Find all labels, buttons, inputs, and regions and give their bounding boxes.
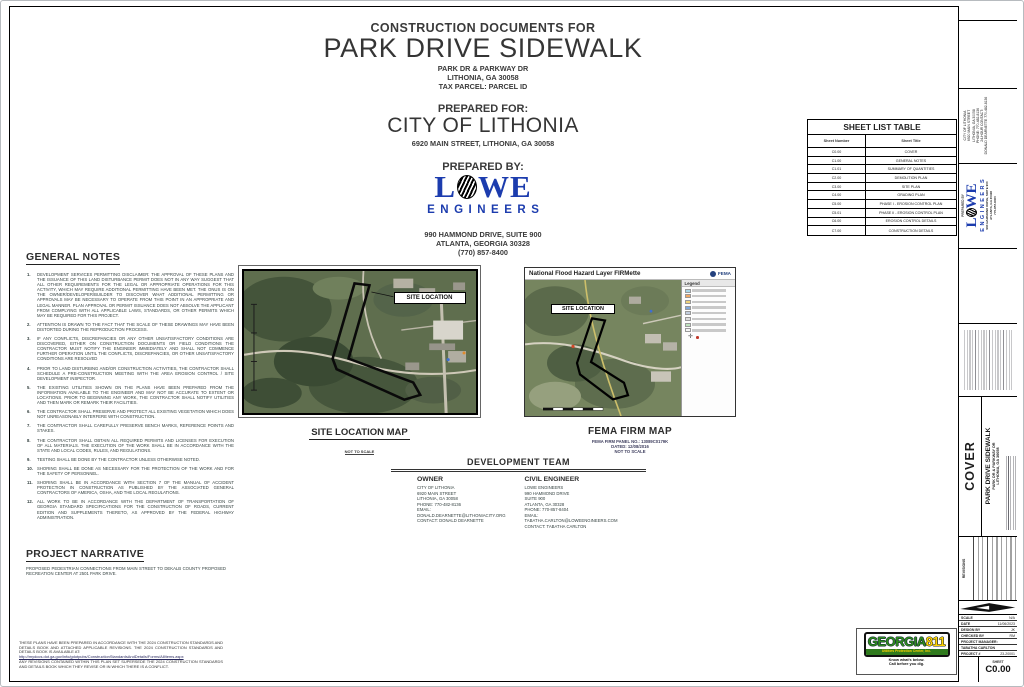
globe-icon (457, 175, 477, 199)
legend-swatch (685, 300, 691, 304)
project-location-1: PARK DR & PARKWAY DR (153, 64, 813, 73)
legend-label-bar (692, 301, 726, 303)
general-note: TESTING SHALL BE DONE BY THE CONTRACTOR … (26, 457, 234, 462)
legend-label-bar (692, 295, 726, 297)
map-pin-icon (696, 336, 699, 339)
fema-aerial-svg (525, 280, 681, 416)
georgia811-box: GEORGIA811 Utilities Protection Center, … (856, 628, 957, 675)
development-team-section: DEVELOPMENT TEAM OWNER CITY OF LITHONIA6… (391, 457, 646, 529)
georgia811-number: 811 (926, 634, 945, 649)
sheet-number-cell: C7.00 (808, 226, 866, 235)
sheet-title-cell: DEMOLITION PLAN (866, 174, 956, 182)
col-sheet-title: Sheet Title (866, 135, 956, 147)
sheet-number-cell: C5.00 (808, 200, 866, 208)
client-name: CITY OF LITHONIA (153, 114, 813, 138)
sheet-list-row: C4.00 GRADING PLAN (808, 191, 956, 200)
tb-revisions-box: REVISIONS (959, 537, 1017, 601)
engineer-lines: LOWE ENGINEERS990 HAMMOND DRIVESUITE 900… (525, 485, 621, 529)
legend-swatch (685, 294, 691, 298)
legend-label-bar (692, 289, 726, 291)
site-location-map: SITE LOCATION (242, 269, 478, 415)
sheet-title-cell: PHASE II - EROSION CONTROL PLAN (866, 209, 956, 217)
tb-field-label: TABATHA CARLTON (961, 646, 995, 650)
sheet-list-row: C1.00 GENERAL NOTES (808, 157, 956, 166)
fema-aerial-photo: SITE LOCATION (525, 280, 681, 416)
fema-legend-footer: ✛ (682, 334, 735, 340)
tb-fields: SCALE N/A DATE 11/06/2023 DESIGN BY JK (959, 615, 1017, 657)
legend-swatch (685, 323, 691, 327)
sheet-list-table: SHEET LIST TABLE Sheet Number Sheet Titl… (807, 119, 957, 236)
drawing-canvas: CONSTRUCTION DOCUMENTS FOR PARK DRIVE SI… (0, 0, 1024, 687)
sheet-title-cell: PHASE I - EROSION CONTROL PLAN (866, 200, 956, 208)
sheet-number-cell: C4.00 (808, 191, 866, 199)
legend-label-bar (692, 312, 726, 314)
sheet-title-cell: EROSION CONTROL DETAILS (866, 218, 956, 226)
general-note: ALL WORK TO BE IN ACCORDANCE WITH THE DE… (26, 499, 234, 519)
legend-swatch (685, 328, 691, 332)
tb-field-value: RM (1010, 634, 1015, 638)
site-location-map-frame: SITE LOCATION (238, 265, 481, 418)
engineer-address-1: 990 HAMMOND DRIVE, SUITE 900 (153, 230, 813, 239)
tb-project-name: PARK DRIVE SIDEWALK (985, 397, 992, 536)
compass-icon: ✛ (688, 334, 693, 340)
fema-legend-panel: Legend ✛ (681, 280, 735, 416)
tb-field-value: 11/06/2023 (998, 622, 1015, 626)
tb-cover-box: COVER PARK DRIVE SIDEWALK PARK DR & PARK… (959, 397, 1017, 537)
tb-field-label: PROJECT # (961, 652, 980, 656)
sheet-title-cell: GENERAL NOTES (866, 157, 956, 165)
fema-firm-map-frame: National Flood Hazard Layer FIRMette FEM… (524, 267, 736, 417)
general-note: THE CONTRACTOR SHALL PRESERVE AND PROTEC… (26, 409, 234, 419)
tb-engineer-box: PREPARED BY LWE ENGINEERS 990 HAMMOND DR… (959, 164, 1017, 249)
tb-sheet-name: COVER (959, 397, 982, 536)
sheet-number-cell: C2.00 (808, 174, 866, 182)
sheet-list-row: C0.00 COVER (808, 148, 956, 157)
georgia811-bar: Utilities Protection Center, Inc. (866, 649, 948, 655)
georgia811-word: GEORGIA (868, 634, 926, 649)
fema-caption-title: FEMA FIRM MAP (586, 426, 674, 438)
general-note: ATTENTION IS DRAWN TO THE FACT THAT THE … (26, 322, 234, 332)
civil-engineer-label: CIVIL ENGINEER (525, 476, 621, 483)
project-location-3: TAX PARCEL: PARCEL ID (153, 82, 813, 91)
sheet-list-title: SHEET LIST TABLE (808, 120, 956, 135)
standards-text-2: ANY REVISIONS CONTAINED WITHIN THIS PLAN… (19, 659, 223, 669)
fema-map-caption: FEMA FIRM MAP FEMA FIRM PANEL NO.: 13089… (524, 421, 736, 454)
civil-engineer-column: CIVIL ENGINEER LOWE ENGINEERS990 HAMMOND… (525, 476, 621, 529)
sheet-number-cell: C3.00 (808, 183, 866, 191)
legend-label-bar (692, 318, 726, 320)
tb-north-arrow-box (959, 601, 1017, 615)
legend-swatch (685, 306, 691, 310)
lowe-logo-word: LWE (434, 169, 531, 204)
legend-row (685, 294, 736, 298)
general-note: SHORING SHALL BE IN ACCORDANCE WITH SECT… (26, 480, 234, 495)
legend-row (685, 323, 736, 327)
tb-seal-box (959, 249, 1017, 324)
general-note: THE CONTRACTOR SHALL CAREFULLY PRESERVE … (26, 423, 234, 433)
tb-field-label: DATE (961, 622, 970, 626)
sheet-list-row: C1.01 SUMMARY OF QUANTITIES (808, 165, 956, 174)
fema-legend-title: Legend (682, 280, 735, 287)
tb-client-lines: CITY OF LITHONIA6920 MAIN STREETLITHONIA… (959, 89, 1016, 163)
project-title: PARK DRIVE SIDEWALK (153, 33, 813, 64)
legend-label-bar (692, 323, 726, 325)
sheet-number-cell: C5.01 (808, 209, 866, 217)
tb-sheet-number: C0.00 (979, 664, 1017, 675)
general-note: DEVELOPMENT SERVICES PERMITTING DISCLAIM… (26, 272, 234, 318)
sheet-list-row: C6.00 EROSION CONTROL DETAILS (808, 218, 956, 227)
tb-revisions-label: REVISIONS (959, 537, 969, 600)
tb-field-value: N/A (1009, 616, 1015, 620)
tb-field-value: JK (1011, 628, 1015, 632)
sheet-list-row: C2.00 DEMOLITION PLAN (808, 174, 956, 183)
sheet-title-cell: SUMMARY OF QUANTITIES (866, 165, 956, 173)
sheet-list-row: C5.00 PHASE I - EROSION CONTROL PLAN (808, 200, 956, 209)
tb-lowe-addr3: 770-857-8400 (994, 164, 998, 248)
fema-logo: FEMA (710, 271, 731, 277)
general-note: THE EXISTING UTILITIES SHOWN ON THE PLAN… (26, 385, 234, 405)
legend-row (685, 306, 736, 310)
sheet-number-cell: C0.00 (808, 148, 866, 156)
tb-project-addr2: LITHONIA, GA 30058 (996, 397, 1001, 536)
tb-field-label: SCALE (961, 616, 973, 620)
col-sheet-number: Sheet Number (808, 135, 866, 147)
legend-row (685, 311, 736, 315)
legend-row (685, 317, 736, 321)
north-arrow-icon (959, 601, 1017, 614)
sheet-number-cell: C1.01 (808, 165, 866, 173)
fema-header-title: National Flood Hazard Layer FIRMette (529, 270, 640, 277)
lowe-logo-engineers: ENGINEERS (153, 204, 813, 216)
tb-sheet-label: SHEET (979, 660, 1017, 664)
sheet-list-row: C5.01 PHASE II - EROSION CONTROL PLAN (808, 209, 956, 218)
team-line: CONTACT: DONALD DEARNETTE (417, 518, 513, 524)
project-narrative-text: PROPOSED PEDESTRIAN CONNECTIONS FROM MAI… (26, 566, 226, 576)
tb-lowe-logo: PREPARED BY LWE ENGINEERS 990 HAMMOND DR… (959, 164, 1016, 248)
legend-swatch (685, 289, 691, 293)
legend-label-bar (692, 329, 726, 331)
legend-row (685, 300, 736, 304)
sheet-list-header: Sheet Number Sheet Title (808, 135, 956, 148)
fema-scale-note: NOT TO SCALE (524, 449, 736, 454)
general-notes-section: GENERAL NOTES DEVELOPMENT SERVICES PERMI… (26, 247, 234, 524)
owner-column: OWNER CITY OF LITHONIA6920 MAIN STREETLI… (417, 476, 513, 529)
sheet-number-cell: C1.00 (808, 157, 866, 165)
project-narrative-section: PROJECT NARRATIVE PROPOSED PEDESTRIAN CO… (26, 544, 234, 576)
lowe-logo: LWE (153, 171, 813, 205)
sheet-title-cell: SITE PLAN (866, 183, 956, 191)
project-location-2: LITHONIA, GA 30058 (153, 73, 813, 82)
tb-field-label: DESIGN BY (961, 628, 980, 632)
standards-text-1: THESE PLANS HAVE BEEN PREPARED IN ACCORD… (19, 640, 223, 654)
fema-seal-icon (710, 271, 716, 277)
engineer-address-2: ATLANTA, GEORGIA 30328 (153, 239, 813, 248)
title-block-strip: CITY OF LITHONIA6920 MAIN STREETLITHONIA… (958, 6, 1017, 682)
fema-map-body: SITE LOCATION Legend ✛ (525, 280, 735, 416)
general-notes-list: DEVELOPMENT SERVICES PERMITTING DISCLAIM… (26, 272, 234, 520)
tb-field-value: 23-20001 (1000, 652, 1015, 656)
site-location-callout: SITE LOCATION (394, 292, 466, 304)
georgia811-tag1: Know what's below. (889, 658, 925, 662)
general-note: IF ANY CONFLICTS, DISCREPANCIES OR ANY O… (26, 336, 234, 361)
georgia811-logo: GEORGIA811 Utilities Protection Center, … (864, 632, 950, 657)
fema-logo-text: FEMA (718, 271, 731, 276)
sheet-title-cell: CONSTRUCTION DETAILS (866, 226, 956, 235)
sheet-list-row: C7.00 CONSTRUCTION DETAILS (808, 226, 956, 235)
tb-top-box (959, 6, 1017, 21)
tb-client-box: CITY OF LITHONIA6920 MAIN STREETLITHONIA… (959, 89, 1017, 164)
general-notes-title: GENERAL NOTES (26, 251, 120, 265)
site-map-caption-title: SITE LOCATION MAP (309, 427, 409, 440)
tb-client-line: DONALD DEARNETTE 770-482-8136 (984, 89, 988, 163)
fema-legend-swatches (682, 287, 735, 332)
tb-sheet-number-box: SHEET C0.00 (959, 657, 1017, 682)
tb-sheet-left-cell (959, 657, 979, 682)
fema-map-header: National Flood Hazard Layer FIRMette FEM… (525, 268, 735, 280)
tb-file-microtext (1004, 456, 1016, 530)
sheet-number-cell: C6.00 (808, 218, 866, 226)
sheet-title-cell: GRADING PLAN (866, 191, 956, 199)
sheet-list-rows: C0.00 COVER C1.00 GENERAL NOTES C1.01 SU… (808, 148, 956, 235)
general-note: PRIOR TO LAND DISTURBING AND/OR CONSTRUC… (26, 366, 234, 381)
tb-fields-box: SCALE N/A DATE 11/06/2023 DESIGN BY JK (959, 615, 1017, 657)
tb-disclaimer-microtext (964, 330, 1012, 390)
tb-reference-box (959, 21, 1017, 89)
site-map-scale-note: NOT TO SCALE (345, 449, 375, 455)
team-line: CONTACT: TABATHA CARLTON (525, 524, 621, 530)
owner-lines: CITY OF LITHONIA6920 MAIN STREETLITHONIA… (417, 485, 513, 524)
legend-swatch (685, 317, 691, 321)
tb-cover-rotated: COVER PARK DRIVE SIDEWALK PARK DR & PARK… (959, 397, 1016, 536)
georgia811-tag2: Call before you dig. (889, 662, 924, 666)
general-note: SHORING SHALL BE DONE AS NECESSARY FOR T… (26, 466, 234, 476)
general-note: THE CONTRACTOR SHALL OBTAIN ALL REQUIRED… (26, 438, 234, 453)
cover-sheet-page: { "header": { "doc_type": "CONSTRUCTION … (0, 0, 1024, 687)
legend-row (685, 328, 736, 332)
sheet-list-row: C3.00 SITE PLAN (808, 183, 956, 192)
legend-label-bar (692, 306, 726, 308)
fema-site-location-callout: SITE LOCATION (551, 304, 615, 314)
tb-field-label: CHECKED BY (961, 634, 984, 638)
double-rule (391, 469, 646, 472)
tb-field-label: PROJECT MANAGER: (961, 640, 998, 644)
client-address: 6920 MAIN STREET, LITHONIA, GA 30058 (153, 139, 813, 148)
development-team-title: DEVELOPMENT TEAM (391, 457, 646, 467)
site-map-caption: SITE LOCATION MAP NOT TO SCALE (238, 422, 481, 458)
sheet-title-cell: COVER (866, 148, 956, 156)
project-narrative-title: PROJECT NARRATIVE (26, 548, 144, 562)
tb-disclaimer-box (959, 324, 1017, 397)
legend-row (685, 289, 736, 293)
engineer-phone: (770) 857-8400 (153, 248, 813, 257)
legend-swatch (685, 311, 691, 315)
standards-note: THESE PLANS HAVE BEEN PREPARED IN ACCORD… (19, 641, 223, 669)
tb-lowe-word: LWE (965, 164, 980, 248)
owner-label: OWNER (417, 476, 513, 483)
